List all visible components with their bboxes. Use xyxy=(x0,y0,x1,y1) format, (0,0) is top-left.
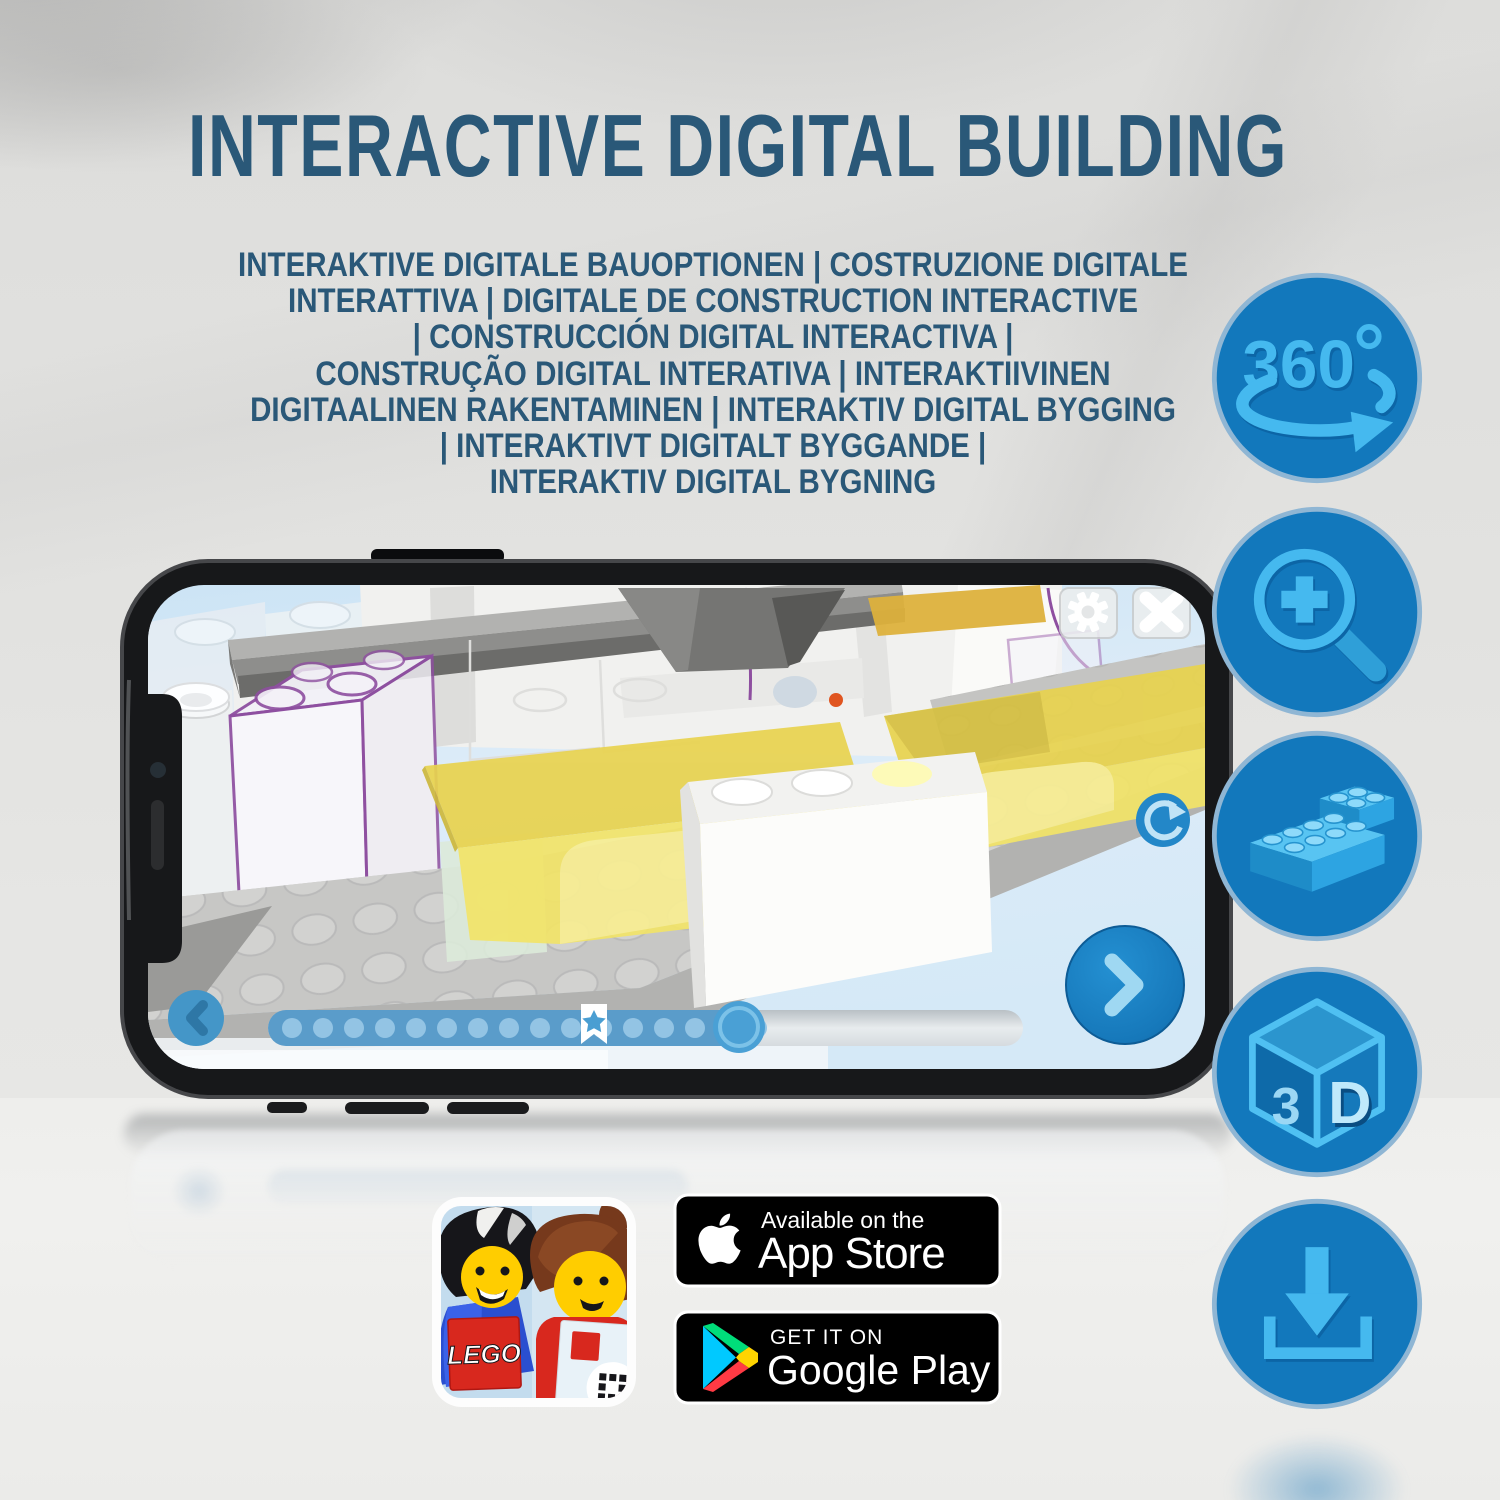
svg-text:LEGO: LEGO xyxy=(447,1338,522,1371)
svg-text:3: 3 xyxy=(1272,1078,1301,1136)
svg-text:Google Play: Google Play xyxy=(767,1347,991,1393)
svg-text:D: D xyxy=(1328,1069,1371,1136)
svg-text:App Store: App Store xyxy=(758,1229,945,1278)
svg-text:GET IT ON: GET IT ON xyxy=(770,1326,883,1349)
